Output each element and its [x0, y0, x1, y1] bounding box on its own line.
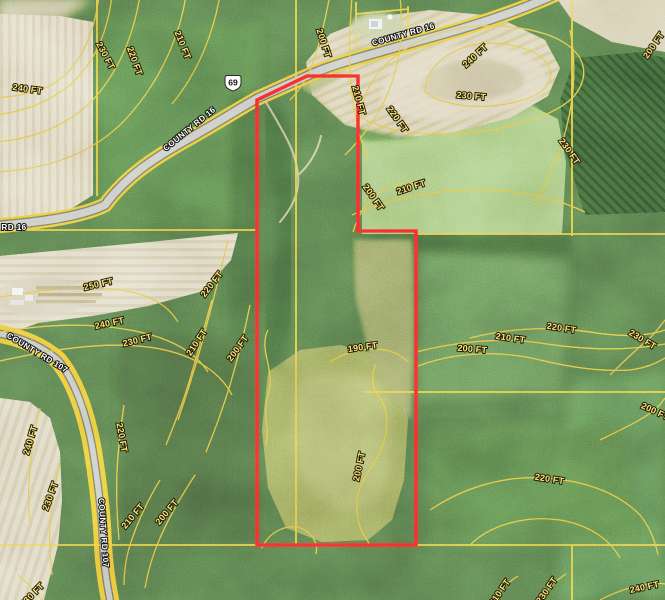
- satellite-map-canvas[interactable]: 240 FT230 FT220 FT210 FT200 FT200 FT240 …: [0, 0, 665, 600]
- road-name-label: RD 16: [1, 223, 26, 232]
- shield-label: 69: [228, 78, 238, 88]
- map-svg: 240 FT230 FT220 FT210 FT200 FT200 FT240 …: [0, 0, 665, 600]
- highway-shield-69: 69: [225, 76, 241, 92]
